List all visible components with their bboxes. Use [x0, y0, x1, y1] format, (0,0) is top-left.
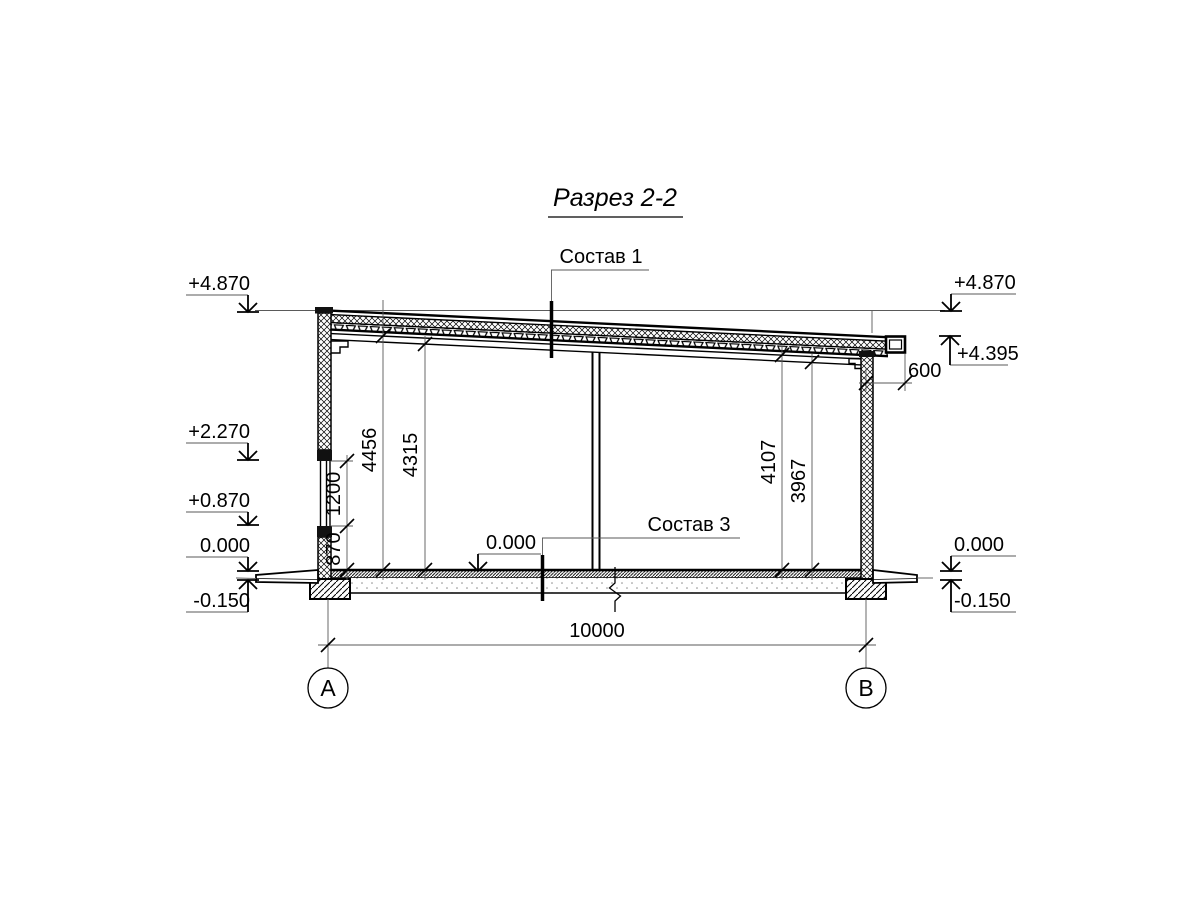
dim-870-text: 870: [323, 532, 345, 565]
title-block: Разрез 2-2: [548, 184, 683, 217]
elev-right-4870-value: +4.870: [954, 272, 1016, 294]
axis-a-label: А: [320, 675, 336, 701]
dim-4456-text: 4456: [359, 428, 381, 473]
dimension-4107: 4107: [758, 347, 789, 580]
floor-slab: [331, 567, 861, 612]
elev-right-0000-value: 0.000: [954, 534, 1004, 556]
parapet-cap: [315, 307, 333, 314]
grid-axes: А В: [308, 668, 886, 708]
floor-underlayer: [350, 578, 846, 594]
elev-left-4870-value: +4.870: [188, 273, 250, 295]
elev-right-4395-value: +4.395: [957, 343, 1019, 365]
page-title: Разрез 2-2: [553, 184, 677, 212]
leader-sostav1-label: Состав 1: [560, 246, 643, 268]
right-wall-cap: [859, 351, 875, 357]
elevation-right-0000: 0.000: [940, 534, 1016, 571]
apron-left: [256, 570, 318, 583]
elev-floor-0000-value: 0.000: [486, 532, 536, 554]
dim-3967-text: 3967: [788, 459, 810, 504]
elev-left-minus0150-value: -0.150: [193, 590, 250, 612]
dim-10000-text: 10000: [569, 620, 625, 642]
leader-sostav3-label: Состав 3: [648, 514, 731, 536]
dim-1200-text: 1200: [323, 472, 345, 517]
elevation-left-0870: +0.870: [186, 490, 259, 525]
elev-right-minus0150-value: -0.150: [954, 590, 1011, 612]
drawing-sheet: Разрез 2-2 Состав 1 Состав 3 870 1200 44…: [0, 0, 1200, 900]
elevation-right-4870: +4.870: [940, 272, 1016, 311]
elevation-left-0000: 0.000: [186, 535, 259, 571]
dimension-chain-left: 870 1200: [323, 454, 354, 580]
right-wall: [859, 351, 875, 579]
apron-right: [873, 570, 917, 583]
elev-left-0870-value: +0.870: [188, 490, 250, 512]
dim-4315-text: 4315: [400, 433, 422, 478]
elevation-left-minus0150: -0.150: [186, 580, 259, 612]
left-wall-upper: [318, 313, 331, 450]
dim-600-text: 600: [908, 360, 941, 382]
elevation-right-4395: +4.395: [939, 336, 1019, 365]
elevation-floor-0000: 0.000: [469, 532, 541, 571]
dimension-span: 10000: [318, 599, 876, 668]
dimension-3967: 3967: [788, 354, 819, 580]
elev-left-2270-value: +2.270: [188, 421, 250, 443]
elevation-left-2270: +2.270: [186, 421, 259, 460]
center-column: [593, 352, 600, 570]
dimension-4315: 4315: [400, 336, 432, 580]
elev-left-0000-value: 0.000: [200, 535, 250, 557]
section-drawing: Разрез 2-2 Состав 1 Состав 3 870 1200 44…: [0, 0, 1200, 900]
dim-4107-text: 4107: [758, 440, 780, 485]
window-lintel: [317, 450, 332, 461]
elevation-left-4870: +4.870: [186, 273, 259, 312]
axis-b-label: В: [858, 675, 873, 701]
elevation-right-minus0150: -0.150: [940, 580, 1016, 612]
